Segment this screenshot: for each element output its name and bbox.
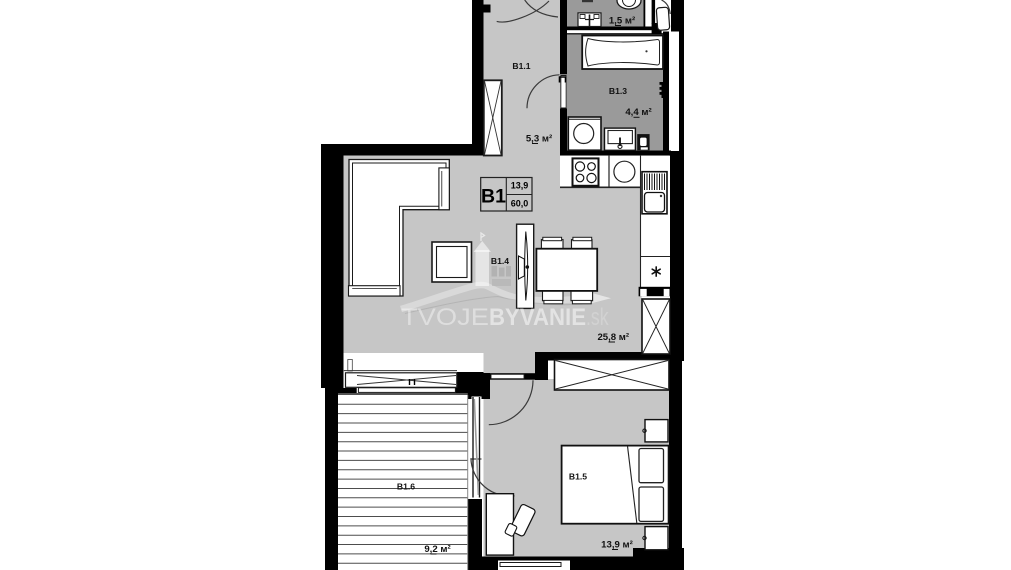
svg-text:B1.3: B1.3 (609, 86, 627, 96)
svg-text:B1.4: B1.4 (491, 256, 509, 266)
svg-text:B1.1: B1.1 (512, 61, 530, 71)
svg-text:60,0: 60,0 (511, 199, 529, 209)
svg-text:.sk: .sk (586, 304, 609, 331)
svg-text:B1.6: B1.6 (397, 482, 415, 492)
svg-text:13,9: 13,9 (511, 181, 529, 191)
svg-text:25,8 м²: 25,8 м² (597, 332, 629, 343)
svg-text:13,9 м²: 13,9 м² (601, 540, 633, 551)
svg-text:BYVANIE: BYVANIE (489, 304, 586, 331)
svg-text:4,4 м²: 4,4 м² (625, 107, 651, 118)
svg-text:B1.5: B1.5 (569, 472, 587, 482)
svg-text:5,3 м²: 5,3 м² (526, 134, 552, 145)
svg-text:9,2 м²: 9,2 м² (424, 544, 450, 555)
svg-text:TVOJE: TVOJE (401, 304, 489, 331)
svg-text:1,5 м²: 1,5 м² (609, 16, 635, 27)
svg-text:B1: B1 (481, 186, 506, 208)
